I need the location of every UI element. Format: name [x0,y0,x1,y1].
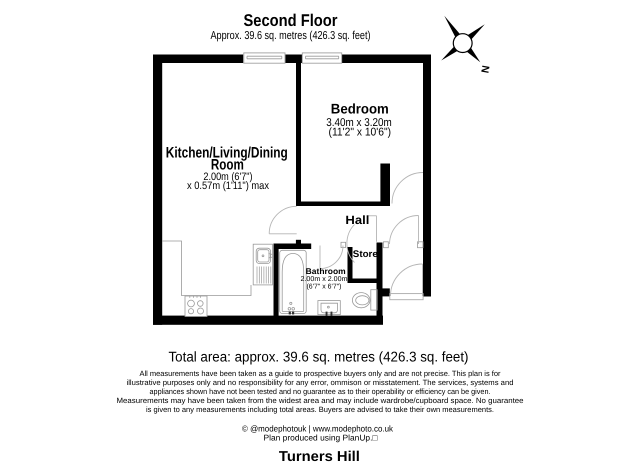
svg-text:is given to any measurements i: is given to any measurements including t… [146,405,494,414]
svg-text:Turners Hill: Turners Hill [279,449,360,465]
svg-text:illustrative purposes only and: illustrative purposes only and no respon… [127,378,514,387]
svg-text:Bedroom: Bedroom [331,101,389,117]
svg-text:x 0.57m (1'11") max: x 0.57m (1'11") max [187,180,270,192]
svg-text:Total area: approx. 39.6 sq. m: Total area: approx. 39.6 sq. metres (426… [169,349,469,365]
svg-text:2.00m x 2.00m: 2.00m x 2.00m [301,276,348,283]
svg-text:Bathroom: Bathroom [306,266,346,276]
svg-text:Second Floor: Second Floor [244,11,338,30]
svg-text:Hall: Hall [345,213,369,227]
svg-text:(11'2" x 10'6"): (11'2" x 10'6") [329,127,392,139]
svg-text:All measurements have been tak: All measurements have been taken as a gu… [140,369,501,378]
svg-text:Store: Store [353,249,378,260]
svg-text:Approx. 39.6 sq. metres (426.3: Approx. 39.6 sq. metres (426.3 sq. feet) [211,30,371,42]
svg-text:Measurements may have been tak: Measurements may have been taken from th… [117,396,524,405]
svg-text:Plan produced using PlanUp.□: Plan produced using PlanUp.□ [264,433,378,443]
svg-text:(6'7" x 6'7"): (6'7" x 6'7") [307,282,342,290]
svg-text:appliances shown have not been: appliances shown have not been tested an… [150,387,491,396]
